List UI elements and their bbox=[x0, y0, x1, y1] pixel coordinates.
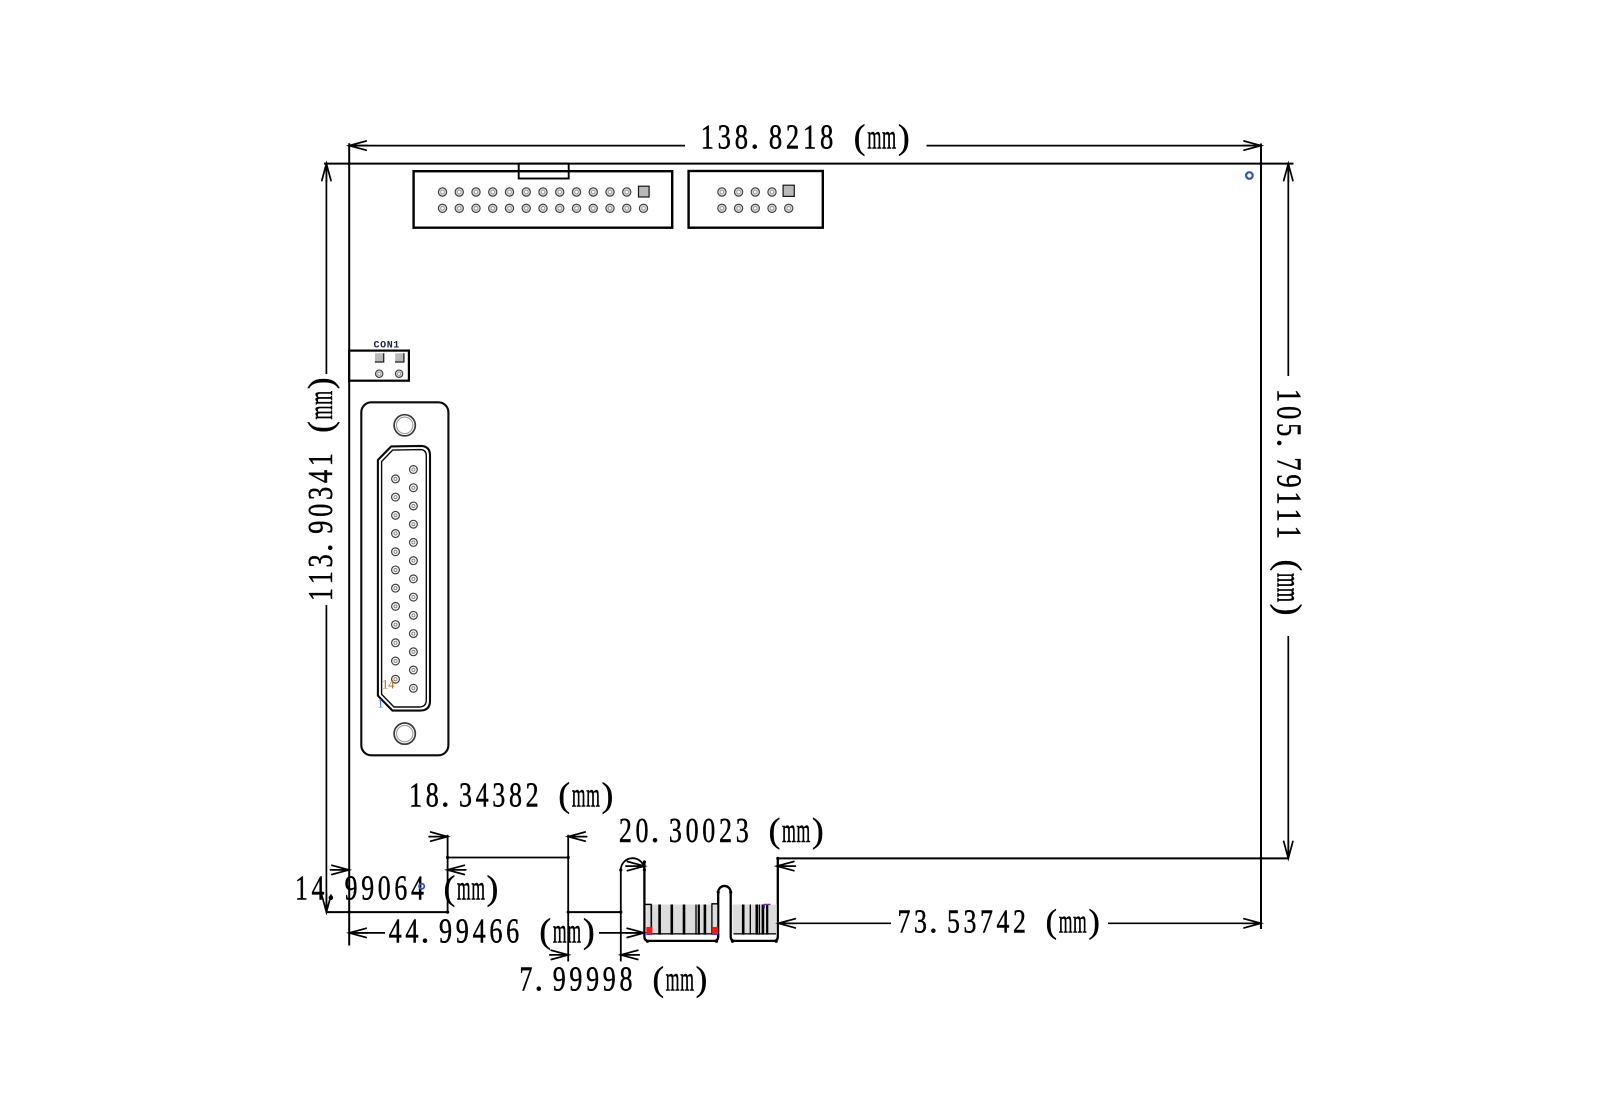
svg-text:9: 9 bbox=[586, 960, 599, 998]
svg-text:): ) bbox=[583, 911, 595, 950]
svg-text:m: m bbox=[567, 911, 581, 950]
svg-text:): ) bbox=[301, 377, 340, 389]
svg-text:): ) bbox=[898, 117, 910, 156]
svg-text:5: 5 bbox=[947, 904, 960, 941]
svg-text:4: 4 bbox=[312, 868, 325, 907]
svg-text:): ) bbox=[487, 868, 499, 907]
svg-text:9: 9 bbox=[439, 911, 452, 950]
svg-text:0: 0 bbox=[1270, 406, 1309, 419]
svg-text:.: . bbox=[1270, 439, 1309, 448]
svg-text:m: m bbox=[553, 911, 567, 950]
svg-text:8: 8 bbox=[509, 776, 522, 815]
svg-text:9: 9 bbox=[603, 960, 616, 998]
svg-text:): ) bbox=[812, 811, 824, 850]
svg-text:7: 7 bbox=[1270, 457, 1309, 470]
svg-text:7: 7 bbox=[980, 904, 993, 941]
svg-text:): ) bbox=[602, 776, 614, 815]
svg-text:4: 4 bbox=[411, 868, 424, 907]
svg-text:9: 9 bbox=[345, 868, 358, 907]
svg-text:.: . bbox=[750, 117, 759, 156]
svg-text:): ) bbox=[1270, 604, 1309, 616]
svg-text:(: ( bbox=[301, 421, 340, 433]
svg-text:1: 1 bbox=[301, 571, 340, 584]
svg-text:4: 4 bbox=[389, 911, 402, 950]
svg-text:1: 1 bbox=[295, 868, 308, 907]
svg-text:(: ( bbox=[444, 868, 456, 907]
svg-text:5: 5 bbox=[1270, 423, 1309, 436]
svg-text:.: . bbox=[651, 811, 660, 850]
svg-text:3: 3 bbox=[718, 117, 731, 156]
svg-text:1: 1 bbox=[377, 697, 383, 711]
svg-text:m: m bbox=[1073, 904, 1087, 941]
svg-text:7: 7 bbox=[898, 904, 911, 941]
svg-text:4: 4 bbox=[301, 470, 340, 483]
svg-text:(: ( bbox=[539, 911, 551, 950]
svg-text:(: ( bbox=[854, 117, 866, 156]
svg-text:2: 2 bbox=[719, 811, 732, 850]
svg-text:1: 1 bbox=[301, 588, 340, 601]
svg-text:(: ( bbox=[1046, 904, 1057, 941]
svg-text:8: 8 bbox=[769, 117, 782, 156]
svg-text:.: . bbox=[301, 543, 340, 552]
svg-text:3: 3 bbox=[736, 811, 749, 850]
svg-text:4: 4 bbox=[405, 911, 418, 950]
svg-text:3: 3 bbox=[301, 554, 340, 567]
svg-text:1: 1 bbox=[1270, 509, 1309, 522]
svg-text:m: m bbox=[1270, 588, 1309, 602]
svg-text:m: m bbox=[666, 960, 680, 998]
svg-text:1: 1 bbox=[1270, 526, 1309, 539]
svg-text:9: 9 bbox=[361, 868, 374, 907]
svg-text:8: 8 bbox=[426, 776, 439, 815]
svg-text:2: 2 bbox=[526, 776, 539, 815]
svg-text:m: m bbox=[1270, 573, 1309, 587]
svg-text:2: 2 bbox=[786, 117, 799, 156]
svg-text:3: 3 bbox=[301, 487, 340, 500]
svg-text:14: 14 bbox=[382, 677, 395, 691]
svg-text:9: 9 bbox=[456, 911, 469, 950]
svg-text:1: 1 bbox=[301, 453, 340, 466]
svg-text:.: . bbox=[929, 904, 938, 941]
svg-text:4: 4 bbox=[476, 776, 489, 815]
svg-text:2: 2 bbox=[1013, 904, 1026, 941]
svg-text:(: ( bbox=[652, 960, 664, 998]
svg-text:9: 9 bbox=[301, 521, 340, 534]
svg-text:0: 0 bbox=[702, 811, 715, 850]
svg-text:1: 1 bbox=[803, 117, 816, 156]
svg-text:m: m bbox=[301, 405, 340, 419]
svg-text:0: 0 bbox=[636, 811, 649, 850]
svg-text:m: m bbox=[680, 960, 694, 998]
svg-text:9: 9 bbox=[1270, 474, 1309, 487]
svg-text:6: 6 bbox=[489, 911, 502, 950]
svg-text:2: 2 bbox=[619, 811, 632, 850]
svg-text:.: . bbox=[421, 911, 430, 950]
svg-text:0: 0 bbox=[378, 868, 391, 907]
svg-text:9: 9 bbox=[569, 960, 582, 998]
svg-text:7: 7 bbox=[519, 960, 532, 998]
svg-text:1: 1 bbox=[1270, 491, 1309, 504]
svg-text:m: m bbox=[572, 776, 586, 815]
svg-text:8: 8 bbox=[619, 960, 632, 998]
svg-text:): ) bbox=[696, 960, 708, 998]
svg-text:m: m bbox=[867, 117, 881, 156]
svg-text:3: 3 bbox=[459, 776, 472, 815]
svg-text:.: . bbox=[441, 776, 450, 815]
svg-text:8: 8 bbox=[820, 117, 833, 156]
svg-text:(: ( bbox=[558, 776, 570, 815]
svg-text:(: ( bbox=[769, 811, 781, 850]
svg-text:): ) bbox=[1088, 904, 1099, 941]
svg-text:6: 6 bbox=[394, 868, 407, 907]
svg-text:4: 4 bbox=[997, 904, 1010, 941]
svg-text:3: 3 bbox=[964, 904, 977, 941]
svg-text:m: m bbox=[586, 776, 600, 815]
svg-text:3: 3 bbox=[492, 776, 505, 815]
svg-text:m: m bbox=[782, 811, 796, 850]
svg-text:0: 0 bbox=[686, 811, 699, 850]
svg-text:(: ( bbox=[1270, 559, 1309, 571]
svg-text:1: 1 bbox=[1270, 389, 1309, 402]
svg-text:1: 1 bbox=[409, 776, 422, 815]
svg-text:m: m bbox=[1059, 904, 1073, 941]
svg-text:8: 8 bbox=[735, 117, 748, 156]
svg-text:3: 3 bbox=[914, 904, 927, 941]
svg-text:m: m bbox=[882, 117, 896, 156]
svg-text:m: m bbox=[796, 811, 810, 850]
svg-text:4: 4 bbox=[473, 911, 486, 950]
svg-text:m: m bbox=[471, 868, 485, 907]
svg-text:3: 3 bbox=[669, 811, 682, 850]
svg-text:0: 0 bbox=[301, 504, 340, 517]
svg-text:9: 9 bbox=[553, 960, 566, 998]
svg-text:1: 1 bbox=[701, 117, 714, 156]
svg-text:.: . bbox=[535, 960, 544, 998]
svg-text:6: 6 bbox=[506, 911, 519, 950]
svg-text:m: m bbox=[301, 391, 340, 405]
